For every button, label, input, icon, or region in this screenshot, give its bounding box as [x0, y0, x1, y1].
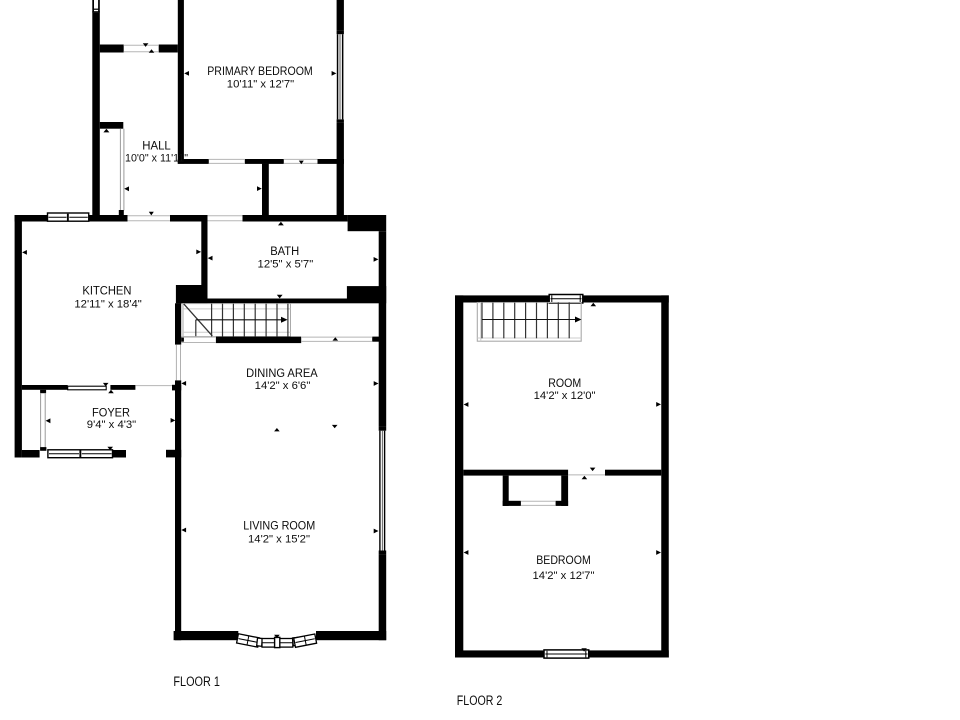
svg-text:FLOOR 2: FLOOR 2: [457, 693, 503, 709]
svg-text:9'4" x 4'3": 9'4" x 4'3": [87, 419, 136, 431]
svg-text:12'5" x 5'7": 12'5" x 5'7": [258, 258, 314, 270]
svg-text:14'2" x 6'6": 14'2" x 6'6": [255, 380, 311, 392]
svg-text:PRIMARY BEDROOM: PRIMARY BEDROOM: [207, 64, 313, 78]
svg-text:ROOM: ROOM: [548, 376, 581, 390]
svg-text:HALL: HALL: [142, 139, 171, 153]
svg-text:KITCHEN: KITCHEN: [82, 283, 131, 297]
svg-text:14'2" x 12'0": 14'2" x 12'0": [534, 390, 596, 402]
svg-text:FLOOR 1: FLOOR 1: [173, 674, 220, 690]
svg-text:12'11" x 18'4": 12'11" x 18'4": [74, 298, 141, 310]
svg-text:BEDROOM: BEDROOM: [536, 553, 591, 567]
svg-text:DINING AREA: DINING AREA: [246, 366, 318, 380]
svg-text:BATH: BATH: [270, 244, 299, 258]
svg-text:FOYER: FOYER: [92, 405, 130, 419]
svg-text:14'2" x 15'2": 14'2" x 15'2": [248, 534, 310, 546]
svg-text:10'0" x 11'11": 10'0" x 11'11": [125, 153, 188, 165]
svg-text:14'2" x 12'7": 14'2" x 12'7": [533, 570, 595, 582]
svg-text:LIVING ROOM: LIVING ROOM: [243, 518, 315, 532]
svg-text:10'11" x 12'7": 10'11" x 12'7": [227, 78, 294, 90]
